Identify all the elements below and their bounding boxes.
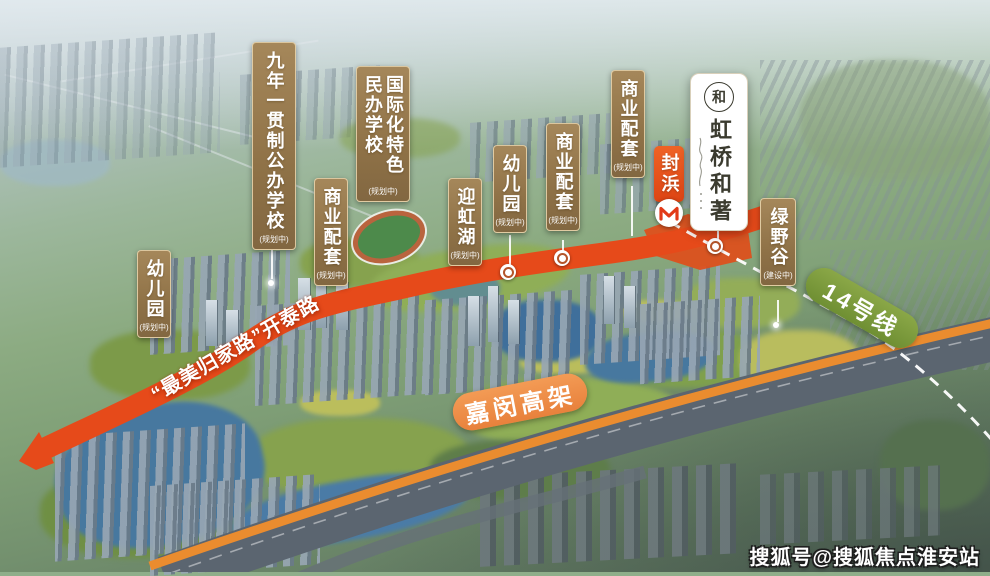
poi-label-text: 商业配套 bbox=[618, 79, 639, 159]
leader-line bbox=[509, 235, 511, 267]
poi-label-text: 幼儿园 bbox=[500, 154, 521, 214]
poi-label-status: (规划中) bbox=[548, 216, 577, 225]
project-name: 虹桥和著 bbox=[707, 118, 731, 226]
poi-label-text: 绿野谷 bbox=[768, 207, 789, 267]
shanghai-metro-icon bbox=[655, 199, 683, 227]
location-pin-icon bbox=[707, 238, 723, 254]
leader-dot bbox=[773, 322, 779, 328]
jiamin-highway-road bbox=[165, 338, 990, 572]
project-logo-char: 和 bbox=[712, 87, 726, 107]
project-card: 和 虹桥和著 bbox=[690, 73, 748, 231]
poi-label-text: 商业配套 bbox=[553, 132, 574, 212]
poi-label-commercial-3: 商业配套 (规划中) bbox=[611, 70, 645, 178]
poi-label-status: (规划中) bbox=[450, 251, 479, 260]
poi-label-commercial-1: 商业配套 (规划中) bbox=[314, 178, 348, 286]
poi-label-yinghong-lake: 迎虹湖 (规划中) bbox=[448, 178, 482, 266]
watermark: 搜狐号@搜狐焦点淮安站 bbox=[749, 541, 980, 570]
poi-label-public-school: 九年一贯制公办学校 (规划中) bbox=[252, 42, 296, 250]
poi-label-text: 幼儿园 bbox=[144, 259, 165, 319]
leader-line bbox=[631, 186, 633, 236]
location-pin-icon bbox=[554, 250, 570, 266]
project-logo-icon: 和 bbox=[704, 82, 734, 112]
poi-label-status: (建设中) bbox=[763, 271, 792, 280]
leader-dot bbox=[268, 280, 274, 286]
poi-label-status: (规划中) bbox=[495, 218, 524, 227]
poi-label-green-valley: 绿野谷 (建设中) bbox=[760, 198, 796, 286]
location-pin-icon bbox=[500, 264, 516, 280]
poi-label-text: 国际化特色民办学校 bbox=[362, 75, 404, 183]
poi-label-text: 迎虹湖 bbox=[455, 187, 476, 247]
poi-label-kindergarten-2: 幼儿园 (规划中) bbox=[493, 145, 527, 233]
poi-label-text: 商业配套 bbox=[321, 187, 342, 267]
poi-label-status: (规划中) bbox=[613, 163, 642, 172]
poi-label-status: (规划中) bbox=[139, 323, 168, 332]
signature-script bbox=[696, 136, 705, 209]
poi-label-status: (规划中) bbox=[368, 187, 397, 196]
poi-label-commercial-2: 商业配套 (规划中) bbox=[546, 123, 580, 231]
station-name: 封浜 bbox=[659, 153, 680, 195]
poi-label-status: (规划中) bbox=[316, 271, 345, 280]
station-label-fengbang: 封浜 bbox=[654, 146, 684, 202]
poi-label-status: (规划中) bbox=[259, 235, 288, 244]
leader-line bbox=[777, 300, 779, 322]
poi-label-kindergarten-1: 幼儿园 (规划中) bbox=[137, 250, 171, 338]
poi-label-private-school: 国际化特色民办学校 (规划中) bbox=[356, 66, 410, 202]
poi-label-text: 九年一贯制公办学校 bbox=[264, 51, 285, 231]
